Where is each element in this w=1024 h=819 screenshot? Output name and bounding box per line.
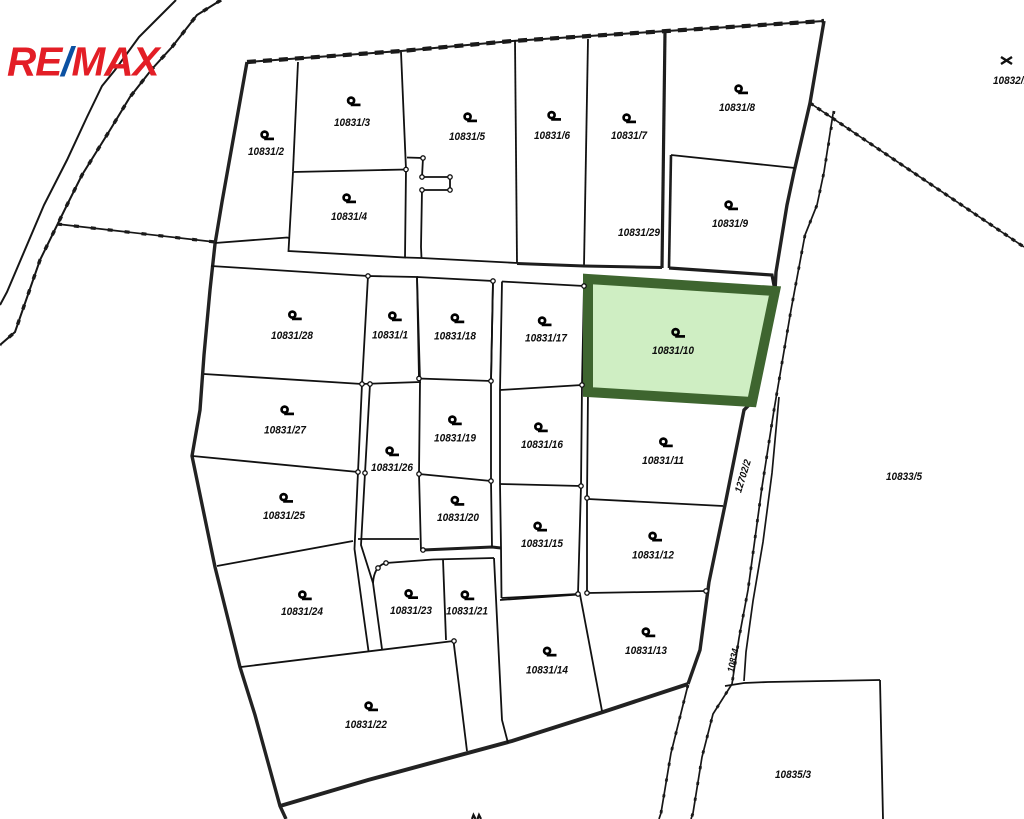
svg-text:10831/13: 10831/13 xyxy=(625,645,667,657)
svg-text:10831/28: 10831/28 xyxy=(271,330,314,342)
svg-text:10831/19: 10831/19 xyxy=(434,433,477,445)
svg-text:10831/9: 10831/9 xyxy=(712,218,749,230)
svg-text:10831/17: 10831/17 xyxy=(525,333,568,345)
svg-text:10831/25: 10831/25 xyxy=(263,510,306,522)
svg-text:10831/21: 10831/21 xyxy=(446,606,488,618)
svg-text:10831/3: 10831/3 xyxy=(334,117,370,129)
svg-text:10831/10: 10831/10 xyxy=(652,345,695,357)
svg-text:10831/14: 10831/14 xyxy=(526,665,568,677)
svg-text:10831/16: 10831/16 xyxy=(521,439,564,451)
svg-text:10831/29: 10831/29 xyxy=(618,227,661,239)
svg-text:10831/24: 10831/24 xyxy=(281,606,323,618)
svg-text:10835/3: 10835/3 xyxy=(775,769,811,781)
svg-text:10831/15: 10831/15 xyxy=(521,538,564,550)
svg-text:RE/MAX: RE/MAX xyxy=(7,39,163,85)
svg-text:10831/7: 10831/7 xyxy=(611,130,648,142)
svg-text:10831/1: 10831/1 xyxy=(372,330,408,342)
svg-text:10831/12: 10831/12 xyxy=(632,550,674,562)
svg-text:10831/2: 10831/2 xyxy=(248,146,284,158)
svg-text:10831/23: 10831/23 xyxy=(390,605,432,617)
svg-text:10831/26: 10831/26 xyxy=(371,462,414,474)
svg-text:10831/20: 10831/20 xyxy=(437,512,480,524)
svg-text:10831/5: 10831/5 xyxy=(449,131,486,143)
svg-text:10831/6: 10831/6 xyxy=(534,130,571,142)
svg-text:10831/4: 10831/4 xyxy=(331,211,367,223)
svg-text:10831/11: 10831/11 xyxy=(642,455,684,467)
svg-text:10831/22: 10831/22 xyxy=(345,719,387,731)
svg-text:10833/5: 10833/5 xyxy=(886,471,923,483)
svg-text:10831/27: 10831/27 xyxy=(264,425,307,437)
svg-text:10831/18: 10831/18 xyxy=(434,331,477,343)
svg-text:10831/8: 10831/8 xyxy=(719,102,756,114)
svg-text:10832/1: 10832/1 xyxy=(993,75,1024,87)
